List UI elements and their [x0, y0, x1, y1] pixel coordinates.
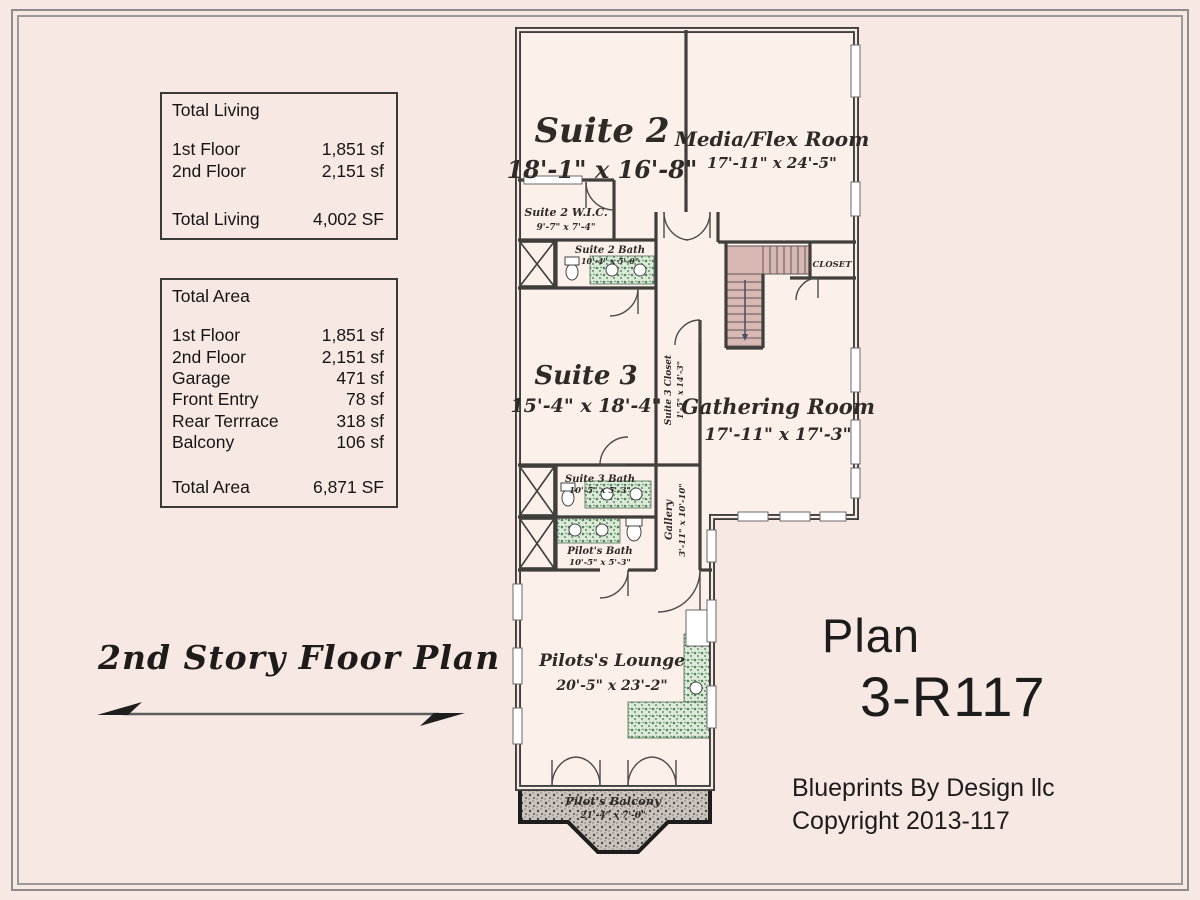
room-dims-balcony: 21'-4" x 7'-0" [579, 811, 645, 821]
table-total-row: Total Area 6,871 SF [172, 477, 384, 498]
room-label-suite2: Suite 2 [534, 111, 669, 151]
room-dims-suite2: 18'-1" x 16'-8" [507, 155, 698, 184]
pilot-bath-counter [556, 517, 620, 543]
room-label-pilotbath: Pilot's Bath [566, 546, 632, 557]
room-label-bath2: Suite 2 Bath [575, 245, 645, 256]
room-label-lounge: Pilots's Lounge [538, 651, 685, 671]
room-label-gathering: Gathering Room [681, 394, 875, 419]
table-row: Garage 471 sf [172, 368, 384, 389]
table-row: 1st Floor 1,851 sf [172, 325, 384, 346]
room-label-wic2: Suite 2 W.I.C. [524, 206, 608, 219]
room-dims-bath2: 10'-4" x 5'-0" [581, 256, 639, 266]
room-label-suite3: Suite 3 [534, 361, 637, 391]
floor-plan: Suite 2 18'-1" x 16'-8" Media/Flex Room … [500, 15, 875, 865]
room-dims-gathering: 17'-11" x 17'-3" [704, 425, 851, 445]
table-row: 2nd Floor 2,151 sf [172, 347, 384, 368]
room-dims-pilotbath: 10'-5" x 5'-3" [569, 558, 631, 568]
table-row: Front Entry 78 sf [172, 389, 384, 410]
total-living-table: Total Living 1st Floor 1,851 sf 2nd Floo… [160, 92, 398, 240]
room-label-balcony: Pilot's Balcony [564, 794, 662, 808]
table-title: Total Living [172, 100, 384, 121]
table-total-row: Total Living 4,002 SF [172, 209, 384, 230]
room-label-bath3: Suite 3 Bath [565, 474, 635, 485]
table-row: 2nd Floor 2,151 sf [172, 161, 384, 182]
room-label-gallery: Gallery [664, 499, 675, 540]
drawing-title: 2nd Story Floor Plan [98, 638, 468, 677]
room-dims-media: 17'-11" x 24'-5" [707, 154, 837, 172]
plan-number: 3-R117 [860, 664, 1046, 729]
room-label-closet: CLOSET [812, 260, 852, 270]
table-row: Rear Terrrace 318 sf [172, 411, 384, 432]
title-underline-arrow [95, 692, 467, 732]
table-title: Total Area [172, 286, 384, 307]
room-dims-gallery: 3'-11" x 10'-10" [678, 483, 688, 557]
room-label-media: Media/Flex Room [674, 127, 870, 151]
room-dims-bath3: 10'-5" x 5'-3" [569, 486, 631, 496]
lounge-bar-horizontal [628, 702, 710, 738]
room-dims-suite3: 15'-4" x 18'-4" [510, 395, 661, 417]
room-label-closet3: Suite 3 Closet [664, 354, 674, 425]
table-row: 1st Floor 1,851 sf [172, 139, 384, 160]
table-row: Balcony 106 sf [172, 432, 384, 453]
room-dims-lounge: 20'-5" x 23'-2" [555, 678, 667, 694]
room-dims-wic2: 9'-7" x 7'-4" [536, 223, 595, 233]
total-area-table: Total Area 1st Floor 1,851 sf 2nd Floor … [160, 278, 398, 508]
